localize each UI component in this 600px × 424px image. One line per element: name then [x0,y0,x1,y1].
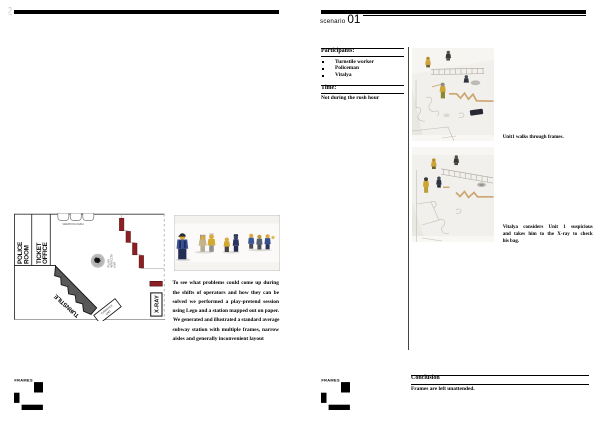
svg-text:VARIATION LOGIKA: VARIATION LOGIKA [62,223,84,226]
svg-text:FRAMES: FRAMES [322,378,341,382]
svg-text:FRAMES: FRAMES [14,378,33,382]
svg-text:UNIT: UNIT [113,261,116,267]
svg-text:OFFICE: OFFICE [42,242,49,264]
svg-text:X-RAY: X-RAY [154,295,160,313]
svg-text:ROOM: ROOM [23,245,30,264]
